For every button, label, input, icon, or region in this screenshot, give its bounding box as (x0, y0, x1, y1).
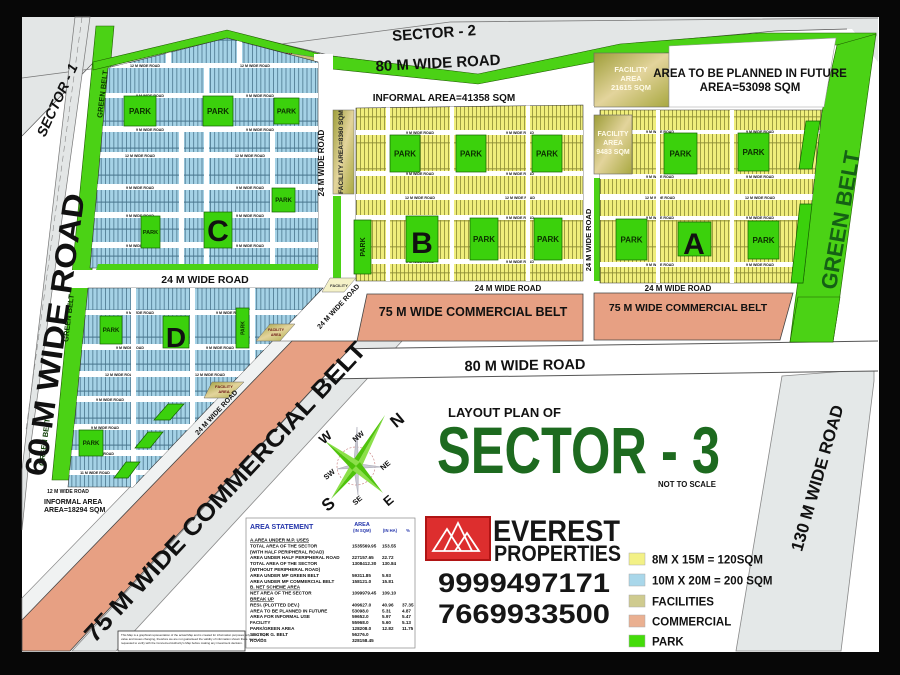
svg-text:56276.0: 56276.0 (352, 632, 369, 637)
svg-text:59311.85: 59311.85 (352, 573, 371, 578)
svg-text:(IN SQM): (IN SQM) (353, 528, 371, 533)
svg-text:40.96: 40.96 (382, 602, 394, 607)
svg-text:9 M WIDE ROAD: 9 M WIDE ROAD (136, 128, 164, 132)
svg-text:FACILITY AREA=8360 SQM: FACILITY AREA=8360 SQM (338, 110, 345, 194)
svg-text:24 M WIDE ROAD: 24 M WIDE ROAD (475, 284, 542, 293)
svg-text:NET AREA OF THE SECTOR: NET AREA OF THE SECTOR (250, 591, 312, 596)
svg-text:328158.45: 328158.45 (352, 638, 374, 643)
svg-text:80 M WIDE ROAD: 80 M WIDE ROAD (464, 357, 585, 375)
svg-text:12 M WIDE ROAD: 12 M WIDE ROAD (405, 196, 435, 200)
svg-text:AREA: AREA (603, 140, 623, 147)
svg-text:PARK: PARK (275, 198, 292, 204)
svg-text:227157.65: 227157.65 (352, 555, 374, 560)
svg-text:1535569.95: 1535569.95 (352, 543, 377, 548)
svg-text:PARK: PARK (742, 148, 764, 157)
svg-text:9 M WIDE ROAD: 9 M WIDE ROAD (126, 186, 154, 190)
svg-text:1099979.45: 1099979.45 (352, 591, 377, 596)
svg-text:5.47: 5.47 (402, 614, 411, 619)
svg-text:AREA=53098 SQM: AREA=53098 SQM (700, 82, 801, 94)
svg-text:(WITH HALF PERIPHERAL ROAD): (WITH HALF PERIPHERAL ROAD) (250, 549, 324, 554)
svg-text:NOT TO SCALE: NOT TO SCALE (658, 480, 716, 489)
svg-text:AREA TO BE PLANNED IN FUTURE: AREA TO BE PLANNED IN FUTURE (250, 608, 327, 613)
svg-text:109.10: 109.10 (382, 591, 396, 596)
svg-text:9 M WIDE ROAD: 9 M WIDE ROAD (206, 346, 234, 350)
svg-text:B. NET SCHEME AREA: B. NET SCHEME AREA (250, 585, 301, 590)
svg-text:FACILITY: FACILITY (268, 328, 285, 332)
svg-text:9 M WIDE ROAD: 9 M WIDE ROAD (646, 263, 674, 267)
svg-text:9 M WIDE ROAD: 9 M WIDE ROAD (246, 128, 274, 132)
svg-text:INFORMAL AREA: INFORMAL AREA (44, 499, 102, 506)
svg-text:PARK: PARK (277, 108, 296, 115)
svg-text:(WITHOUT PERIPHERAL ROAD): (WITHOUT PERIPHERAL ROAD) (250, 567, 321, 572)
svg-text:9 M WIDE ROAD: 9 M WIDE ROAD (236, 244, 264, 248)
svg-text:PARK: PARK (460, 149, 482, 158)
svg-text:PARK: PARK (394, 149, 416, 158)
svg-text:5.13: 5.13 (402, 620, 411, 625)
svg-text:24 M WIDE ROAD: 24 M WIDE ROAD (317, 129, 326, 196)
svg-text:AREA FOR INFORMAL USE: AREA FOR INFORMAL USE (250, 614, 310, 619)
svg-text:AREA STATEMENT: AREA STATEMENT (250, 524, 314, 531)
svg-text:AREA TO BE PLANNED IN FUTURE: AREA TO BE PLANNED IN FUTURE (653, 68, 847, 80)
svg-text:PARK: PARK (652, 637, 684, 649)
svg-text:9 M WIDE ROAD: 9 M WIDE ROAD (126, 311, 154, 315)
svg-text:SECTOR - 3: SECTOR - 3 (437, 413, 720, 487)
svg-text:53098.0: 53098.0 (352, 608, 369, 613)
svg-text:12 M WIDE ROAD: 12 M WIDE ROAD (195, 373, 225, 377)
svg-text:4.87: 4.87 (402, 608, 411, 613)
svg-text:PARK: PARK (129, 107, 151, 116)
svg-text:AREA: AREA (620, 74, 642, 83)
svg-text:AREA: AREA (271, 333, 282, 337)
svg-text:9 M WIDE ROAD: 9 M WIDE ROAD (646, 175, 674, 179)
svg-text:FACILITIES: FACILITIES (652, 597, 714, 609)
svg-text:24 M WIDE ROAD: 24 M WIDE ROAD (161, 274, 249, 286)
svg-text:8M X 15M = 120SQM: 8M X 15M = 120SQM (652, 555, 763, 567)
svg-text:A.AREA UNDER M.P. USES: A.AREA UNDER M.P. USES (250, 538, 309, 543)
svg-text:PARK: PARK (669, 149, 691, 158)
svg-text:9999497171: 9999497171 (438, 568, 610, 598)
svg-text:10M X 20M = 200 SQM: 10M X 20M = 200 SQM (652, 576, 773, 588)
svg-text:9 M WIDE ROAD: 9 M WIDE ROAD (246, 94, 274, 98)
svg-text:PARK: PARK (473, 235, 495, 244)
svg-text:9 M WIDE ROAD: 9 M WIDE ROAD (506, 260, 534, 264)
svg-text:9 M WIDE ROAD: 9 M WIDE ROAD (646, 216, 674, 220)
svg-text:5.93: 5.93 (382, 573, 391, 578)
svg-text:AREA: AREA (218, 389, 229, 394)
svg-text:%: % (406, 528, 410, 533)
svg-text:12.82: 12.82 (382, 626, 394, 631)
svg-text:BREAK UP: BREAK UP (250, 597, 274, 602)
svg-text:requested to verify with the C: requested to verify with the Concerned A… (121, 641, 243, 645)
svg-text:PARK: PARK (103, 328, 120, 334)
svg-text:9 M WIDE ROAD: 9 M WIDE ROAD (236, 214, 264, 218)
svg-text:9 M WIDE ROAD: 9 M WIDE ROAD (746, 175, 774, 179)
svg-text:PARK: PARK (240, 321, 246, 335)
svg-text:A: A (683, 228, 705, 261)
svg-text:COMMERCIAL: COMMERCIAL (652, 617, 731, 629)
svg-text:9 M WIDE ROAD: 9 M WIDE ROAD (236, 186, 264, 190)
svg-text:12 M WIDE ROAD: 12 M WIDE ROAD (745, 196, 775, 200)
svg-text:FACILITY: FACILITY (614, 65, 647, 74)
svg-text:AREA UNDER MP GREEN BELT: AREA UNDER MP GREEN BELT (250, 573, 319, 578)
svg-text:FACILITY: FACILITY (330, 283, 348, 288)
svg-text:AREA UNDER MP COMMERCIAL BELT: AREA UNDER MP COMMERCIAL BELT (250, 579, 334, 584)
svg-text:409627.0: 409627.0 (352, 602, 372, 607)
svg-text:INFORMAL AREA=41358 SQM: INFORMAL AREA=41358 SQM (373, 93, 516, 104)
svg-text:1308412.30: 1308412.30 (352, 561, 377, 566)
svg-text:9 M WIDE ROAD: 9 M WIDE ROAD (746, 216, 774, 220)
svg-text:55968.0: 55968.0 (352, 620, 369, 625)
svg-text:12 M WIDE ROAD: 12 M WIDE ROAD (235, 154, 265, 158)
svg-text:7669933500: 7669933500 (438, 599, 610, 629)
svg-text:9 M WIDE ROAD: 9 M WIDE ROAD (406, 131, 434, 135)
svg-text:12 M WIDE ROAD: 12 M WIDE ROAD (505, 196, 535, 200)
svg-text:PARK: PARK (360, 237, 367, 256)
svg-text:12 M WIDE ROAD: 12 M WIDE ROAD (130, 64, 160, 68)
svg-text:AREA UNDER HALF PERIPHERAL ROA: AREA UNDER HALF PERIPHERAL ROAD (250, 555, 340, 560)
svg-text:TOTAL AREA OF THE SECTOR: TOTAL AREA OF THE SECTOR (250, 561, 318, 566)
svg-text:9 M WIDE ROAD: 9 M WIDE ROAD (116, 346, 144, 350)
svg-text:AREA=18294 SQM: AREA=18294 SQM (44, 507, 105, 514)
svg-text:11.75: 11.75 (402, 626, 414, 631)
svg-text:59652.0: 59652.0 (352, 614, 369, 619)
svg-text:9 M WIDE ROAD: 9 M WIDE ROAD (96, 398, 124, 402)
svg-text:128208.0: 128208.0 (352, 626, 372, 631)
svg-text:12 M WIDE ROAD: 12 M WIDE ROAD (645, 196, 675, 200)
svg-text:PROPERTIES: PROPERTIES (494, 541, 621, 566)
svg-text:FACILITY: FACILITY (597, 131, 628, 138)
svg-text:PARK: PARK (537, 235, 559, 244)
svg-text:5.60: 5.60 (382, 620, 391, 625)
svg-text:9 M WIDE ROAD: 9 M WIDE ROAD (91, 426, 119, 430)
svg-text:153.55: 153.55 (382, 543, 396, 548)
svg-text:RESI. (PLOTTED DEV.): RESI. (PLOTTED DEV.) (250, 602, 300, 607)
svg-text:12 M WIDE ROAD: 12 M WIDE ROAD (125, 154, 155, 158)
svg-text:D: D (166, 322, 186, 353)
svg-text:5.31: 5.31 (382, 608, 391, 613)
svg-text:9 M WIDE ROAD: 9 M WIDE ROAD (406, 172, 434, 176)
svg-text:FACILITY: FACILITY (250, 620, 270, 625)
svg-text:24 M WIDE ROAD: 24 M WIDE ROAD (584, 208, 593, 271)
svg-text:11 M WIDE ROAD: 11 M WIDE ROAD (80, 471, 110, 475)
svg-text:9483 SQM: 9483 SQM (596, 149, 630, 156)
svg-text:B: B (411, 227, 433, 260)
svg-text:TOTAL AREA OF THE SECTOR: TOTAL AREA OF THE SECTOR (250, 543, 318, 548)
svg-text:PARK: PARK (620, 235, 642, 244)
svg-text:12 M WIDE ROAD: 12 M WIDE ROAD (240, 64, 270, 68)
svg-text:9 M WIDE ROAD: 9 M WIDE ROAD (506, 216, 534, 220)
svg-text:(IN HA): (IN HA) (383, 528, 398, 533)
svg-text:15.81: 15.81 (382, 579, 394, 584)
svg-text:PARK: PARK (143, 230, 158, 236)
svg-text:PARK/GREEN AREA: PARK/GREEN AREA (250, 626, 295, 631)
svg-text:130.84: 130.84 (382, 561, 396, 566)
svg-text:PARK: PARK (83, 441, 100, 447)
svg-text:9 M WIDE ROAD: 9 M WIDE ROAD (506, 172, 534, 176)
svg-text:PARK: PARK (752, 236, 774, 245)
svg-text:12 M WIDE ROAD: 12 M WIDE ROAD (105, 373, 135, 377)
svg-text:37.35: 37.35 (402, 602, 414, 607)
svg-text:PARK: PARK (207, 107, 229, 116)
svg-text:75 M WIDE COMMERCIAL BELT: 75 M WIDE COMMERCIAL BELT (379, 305, 568, 319)
svg-text:21615 SQM: 21615 SQM (611, 83, 651, 92)
svg-text:9 M WIDE ROAD: 9 M WIDE ROAD (506, 131, 534, 135)
svg-text:C: C (207, 215, 229, 248)
svg-text:5.97: 5.97 (382, 614, 391, 619)
svg-text:12 M WIDE ROAD: 12 M WIDE ROAD (47, 489, 89, 495)
svg-text:22.72: 22.72 (382, 555, 394, 560)
svg-text:24 M WIDE ROAD: 24 M WIDE ROAD (645, 284, 712, 293)
svg-text:75 M WIDE COMMERCIAL BELT: 75 M WIDE COMMERCIAL BELT (609, 302, 768, 314)
svg-text:158121.0: 158121.0 (352, 579, 372, 584)
svg-text:PARK: PARK (536, 149, 558, 158)
svg-text:9 M WIDE ROAD: 9 M WIDE ROAD (746, 263, 774, 267)
